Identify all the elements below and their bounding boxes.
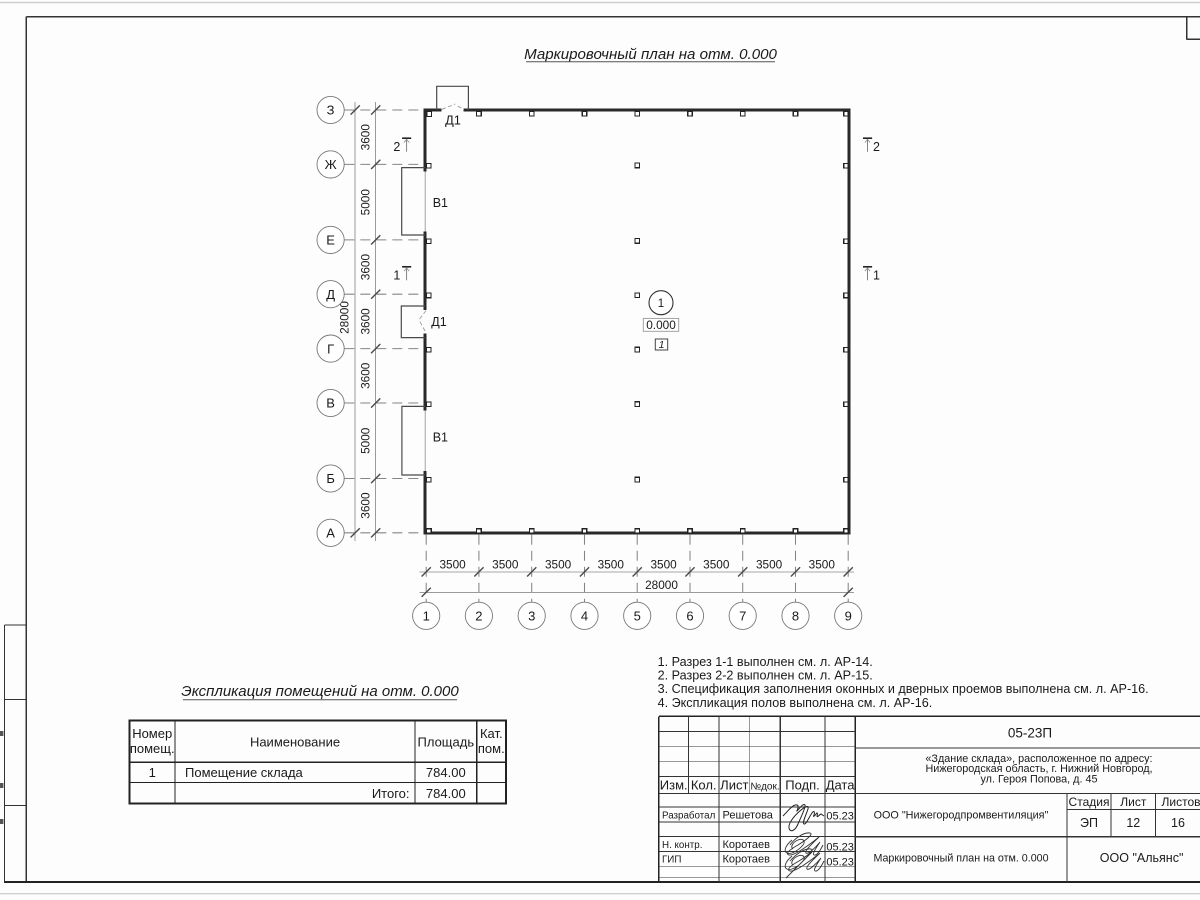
svg-text:Номер: Номер bbox=[132, 726, 172, 741]
svg-text:784.00: 784.00 bbox=[426, 786, 466, 801]
svg-text:Коротаев: Коротаев bbox=[723, 839, 771, 851]
svg-text:5000: 5000 bbox=[358, 427, 372, 454]
svg-text:3500: 3500 bbox=[650, 558, 677, 572]
svg-text:3: 3 bbox=[528, 609, 535, 624]
svg-text:12: 12 bbox=[1126, 816, 1140, 830]
svg-text:Е: Е bbox=[326, 233, 335, 248]
svg-text:Решетова: Решетова bbox=[723, 810, 774, 822]
svg-text:Г: Г bbox=[327, 341, 334, 356]
svg-text:1. Разрез 1-1 выполнен см. л.: 1. Разрез 1-1 выполнен см. л. АР-14. bbox=[658, 655, 873, 669]
svg-text:1: 1 bbox=[393, 269, 400, 283]
svg-text:Помещение склада: Помещение склада bbox=[185, 765, 304, 780]
svg-text:З: З bbox=[327, 103, 335, 118]
svg-text:5: 5 bbox=[634, 609, 641, 624]
svg-text:Площадь: Площадь bbox=[418, 735, 475, 750]
svg-text:7: 7 bbox=[739, 609, 746, 624]
svg-text:3500: 3500 bbox=[545, 558, 572, 572]
svg-text:9: 9 bbox=[845, 609, 852, 624]
svg-text:05.23: 05.23 bbox=[826, 811, 854, 823]
svg-text:05.23: 05.23 bbox=[826, 857, 854, 869]
svg-text:Дата: Дата bbox=[826, 778, 856, 793]
svg-text:Д1: Д1 bbox=[445, 112, 461, 127]
svg-text:Маркировочный план на отм. 0.0: Маркировочный план на отм. 0.000 bbox=[873, 853, 1048, 865]
svg-text:28000: 28000 bbox=[337, 301, 351, 334]
svg-text:28000: 28000 bbox=[645, 578, 678, 592]
svg-text:2: 2 bbox=[475, 609, 482, 624]
svg-text:3. Спецификация заполнения око: 3. Спецификация заполнения оконных и две… bbox=[658, 682, 1149, 696]
svg-text:8: 8 bbox=[792, 609, 799, 624]
svg-text:пом.: пом. bbox=[478, 741, 505, 756]
svg-text:Наименование: Наименование bbox=[250, 735, 340, 750]
svg-text:Маркировочный план на отм. 0.0: Маркировочный план на отм. 0.000 bbox=[524, 46, 777, 63]
svg-text:ЭП: ЭП bbox=[1080, 816, 1098, 830]
svg-text:ГИП: ГИП bbox=[662, 855, 681, 866]
svg-text:Д1: Д1 bbox=[431, 315, 446, 329]
svg-text:Коротаев: Коротаев bbox=[723, 854, 771, 866]
svg-text:2: 2 bbox=[873, 140, 880, 154]
svg-text:1: 1 bbox=[149, 765, 156, 780]
svg-text:Подп.: Подп. bbox=[785, 778, 820, 793]
svg-text:784.00: 784.00 bbox=[426, 765, 466, 780]
svg-text:3500: 3500 bbox=[703, 558, 730, 572]
svg-text:2. Разрез 2-2 выполнен см. л.: 2. Разрез 2-2 выполнен см. л. АР-15. bbox=[658, 669, 873, 683]
svg-text:16: 16 bbox=[1171, 816, 1185, 830]
svg-text:В1: В1 bbox=[433, 196, 448, 210]
svg-text:ООО "Альянс": ООО "Альянс" bbox=[1100, 851, 1184, 865]
svg-text:4. Экспликация полов выполнена: 4. Экспликация полов выполнена см. л. АР… bbox=[658, 696, 933, 710]
svg-text:3500: 3500 bbox=[439, 558, 466, 572]
svg-text:Лист: Лист bbox=[1120, 795, 1147, 809]
svg-text:ООО "Нижегородпромвентиляция": ООО "Нижегородпромвентиляция" bbox=[874, 810, 1049, 822]
svg-text:Кат.: Кат. bbox=[480, 726, 503, 741]
svg-text:Д: Д bbox=[326, 287, 335, 302]
svg-text:0.000: 0.000 bbox=[646, 318, 676, 332]
svg-text:ул. Героя Попова, д. 45: ул. Героя Попова, д. 45 bbox=[981, 774, 1098, 786]
svg-text:Экспликация помещений на отм.: Экспликация помещений на отм. 0.000 bbox=[181, 683, 459, 700]
svg-text:В: В bbox=[326, 396, 335, 411]
svg-text:Ж: Ж bbox=[325, 157, 337, 172]
svg-text:2: 2 bbox=[393, 140, 400, 154]
svg-text:Итого:: Итого: bbox=[372, 786, 410, 801]
svg-text:3600: 3600 bbox=[358, 492, 372, 519]
svg-text:3500: 3500 bbox=[598, 558, 625, 572]
svg-text:Н. контр.: Н. контр. bbox=[662, 840, 702, 851]
svg-text:05-23П: 05-23П bbox=[1008, 726, 1052, 741]
svg-text:Разработал: Разработал bbox=[662, 811, 716, 822]
svg-text:3600: 3600 bbox=[358, 254, 372, 281]
svg-text:1: 1 bbox=[873, 269, 880, 283]
svg-text:В1: В1 bbox=[433, 430, 448, 444]
svg-text:А: А bbox=[326, 526, 335, 541]
svg-text:3500: 3500 bbox=[756, 558, 783, 572]
svg-text:Лист: Лист bbox=[720, 778, 748, 793]
svg-text:1: 1 bbox=[659, 339, 665, 351]
svg-text:3600: 3600 bbox=[358, 308, 372, 335]
svg-text:5000: 5000 bbox=[358, 189, 372, 216]
svg-text:3500: 3500 bbox=[809, 558, 836, 572]
svg-text:Стадия: Стадия bbox=[1069, 795, 1110, 809]
svg-text:4: 4 bbox=[581, 609, 588, 624]
svg-text:3600: 3600 bbox=[358, 124, 372, 151]
svg-text:Изм.: Изм. bbox=[660, 778, 688, 793]
svg-text:№док.: №док. bbox=[750, 782, 779, 793]
svg-text:Б: Б bbox=[326, 471, 335, 486]
svg-text:3600: 3600 bbox=[358, 362, 372, 389]
svg-text:1: 1 bbox=[658, 298, 664, 310]
svg-text:1: 1 bbox=[423, 609, 430, 624]
svg-text:05.23: 05.23 bbox=[826, 842, 854, 854]
svg-text:3500: 3500 bbox=[492, 558, 519, 572]
svg-text:Кол.: Кол. bbox=[691, 778, 717, 793]
svg-text:6: 6 bbox=[686, 609, 693, 624]
svg-text:Листов: Листов bbox=[1162, 795, 1200, 809]
svg-text:помещ.: помещ. bbox=[130, 741, 175, 756]
